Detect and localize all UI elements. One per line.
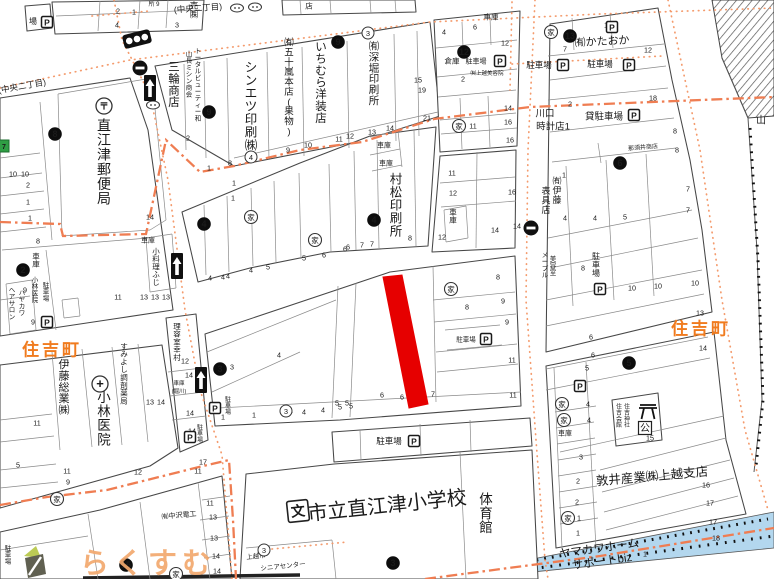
house-icon-glyph: 家: [311, 235, 319, 245]
lot-number: 14: [699, 344, 707, 353]
bus-stop-dot: [252, 6, 254, 8]
place-label: 小料理ふじ: [152, 247, 160, 287]
lot-number: 4: [593, 214, 597, 223]
parking-icon: P: [629, 110, 640, 121]
place-label: 駐車場: [225, 395, 231, 415]
house-icon-glyph: 家: [547, 27, 555, 37]
white-circle-marker: 3: [258, 544, 270, 556]
place-label: 川口: [535, 108, 554, 119]
place-label: 小林医院: [32, 275, 39, 304]
black-circle-marker: 12: [457, 45, 471, 59]
house-icon-glyph: 家: [53, 494, 61, 504]
marker-number: 6: [617, 158, 622, 168]
place-label: 車庫: [32, 251, 40, 269]
place-label: 車庫: [449, 207, 457, 225]
place-label: 山: [756, 115, 766, 127]
place-label: 車庫: [379, 159, 393, 168]
place-label: 山長ミシン商会: [186, 49, 193, 99]
one-way-arrow-icon: [144, 75, 156, 101]
lot-number: 4: [587, 416, 591, 425]
lot-number: 17: [709, 518, 717, 527]
marker-number: 9: [206, 107, 211, 117]
parking-icon: P: [210, 403, 221, 414]
black-circle-marker: 3: [386, 556, 400, 570]
lot-number: 8: [408, 234, 412, 243]
lot-number: 14: [513, 222, 521, 231]
lot-number: 8: [496, 273, 500, 282]
no-entry-bar: [136, 67, 145, 70]
lot-number: 11: [33, 419, 40, 428]
house-icon: 家: [545, 26, 558, 39]
marker-number: 4: [201, 219, 206, 229]
place-label: すみよし調剤薬局: [120, 342, 128, 406]
lot-number: 12: [438, 233, 446, 242]
house-icon-glyph: 家: [558, 399, 566, 409]
place-label: ㈲上越美容院: [470, 69, 504, 77]
place-label: 所 9: [148, 0, 160, 8]
place-label: 美容室: [550, 254, 557, 277]
lot-number: 8: [465, 303, 469, 312]
one-way-arrow-icon: [171, 253, 183, 279]
place-label: 駐車場: [587, 59, 613, 69]
lot-number: 11: [508, 356, 515, 365]
lot-number: 2: [186, 134, 190, 143]
black-circle-marker: 9: [202, 105, 216, 119]
lot-number: 13: [368, 128, 376, 137]
bus-stop-oval: [147, 101, 160, 109]
lot-number: 6: [473, 23, 477, 32]
parking-icon-letter: P: [631, 110, 637, 120]
place-label: 伊藤総業㈱: [59, 358, 70, 417]
lot-number: 1: [643, 550, 647, 559]
lot-number: 8: [673, 127, 677, 136]
marker-number: 3: [262, 546, 266, 555]
parking-icon-letter: P: [577, 381, 583, 391]
lot-number: 3: [175, 21, 179, 30]
parking-icon: P: [595, 284, 606, 295]
place-label: 場: [29, 16, 37, 26]
house-icon: 家: [245, 211, 258, 224]
lot-number: 8: [228, 159, 232, 168]
lot-number: 8: [36, 237, 40, 246]
lot-number: 10: [691, 279, 699, 288]
lot-number: 11: [509, 391, 516, 400]
lot-number: 9: [505, 318, 509, 327]
place-label: 表具店: [541, 185, 550, 215]
lot-number: 8: [581, 264, 585, 273]
marker-number: 4: [249, 153, 253, 162]
lot-number: 16: [504, 118, 512, 127]
lot-number: 21: [423, 114, 431, 123]
school-icon-glyph: 文: [290, 502, 307, 519]
place-label: 駐車場: [592, 251, 600, 278]
place-label: 駐車場: [43, 280, 50, 303]
lot-number: 1: [221, 413, 225, 422]
parking-icon: P: [185, 432, 196, 443]
lot-number: 13: [146, 398, 154, 407]
lot-number: 11: [206, 499, 213, 508]
marker-number: 8: [52, 129, 57, 139]
lot-number: 11: [469, 122, 476, 131]
house-icon-glyph: 家: [560, 415, 568, 425]
lot-number: 18: [712, 534, 720, 543]
lot-number: 4: [277, 351, 281, 360]
lot-number: 15: [414, 76, 422, 85]
lot-number: 2: [461, 75, 465, 84]
house-icon-glyph: 家: [564, 513, 572, 523]
white-circle-marker: 3: [362, 27, 374, 39]
lot-number: 16: [508, 188, 516, 197]
parking-icon-letter: P: [609, 22, 615, 32]
marker-number: 2: [20, 265, 25, 275]
place-label: 住吉会館: [616, 402, 622, 429]
lot-number: 4: [249, 266, 253, 275]
black-circle-marker: 6: [613, 156, 627, 170]
lot-number: 13: [140, 293, 148, 302]
lot-number: 18: [649, 94, 657, 103]
place-label: 小林医院: [97, 390, 111, 447]
lot-number: 4: [208, 274, 212, 283]
place-label: 駐車場: [197, 423, 203, 443]
public-hall-glyph: 公: [640, 424, 650, 435]
parking-icon-letter: P: [560, 60, 566, 70]
lot-number: 1: [577, 514, 581, 523]
black-circle-marker: 9: [331, 35, 345, 49]
parking-icon: P: [607, 22, 618, 33]
house-icon: 家: [51, 493, 64, 506]
parking-icon: P: [575, 381, 586, 392]
marker-number: 13: [565, 31, 575, 41]
bus-stop-dot: [256, 6, 258, 8]
parking-icon: P: [558, 60, 569, 71]
lot-number: 14: [386, 124, 394, 133]
lot-number: 4: [221, 273, 225, 282]
lot-number: 4: [302, 408, 306, 417]
place-label: 三輪商店: [168, 61, 180, 109]
lot-number: 2: [576, 477, 580, 486]
lot-number: 7: [370, 240, 374, 249]
school-icon: 文: [286, 499, 309, 522]
parking-icon-letter: P: [44, 317, 50, 327]
parking-icon: P: [42, 317, 53, 328]
lot-number: 1: [132, 8, 136, 17]
place-label: 店: [305, 1, 313, 11]
lot-number: 6: [589, 333, 593, 342]
lot-number: 14: [186, 409, 194, 418]
lot-number: 9: [286, 146, 290, 155]
parking-icon-letter: P: [597, 284, 603, 294]
lot-number: 9: [31, 318, 35, 327]
marker-number: 3: [366, 29, 370, 38]
bus-stop-dot: [150, 104, 152, 106]
lot-number: 2: [116, 7, 120, 16]
lot-number: 13: [209, 513, 217, 522]
lot-number: 14: [504, 104, 512, 113]
no-entry-icon: [133, 61, 148, 76]
place-label: 村松印刷所: [390, 172, 403, 238]
lot-number: 19: [418, 86, 426, 95]
place-label: 貸駐車場: [585, 110, 624, 122]
black-circle-marker: 2: [16, 263, 30, 277]
parking-icon-letter: P: [497, 56, 503, 66]
black-circle-marker: 8: [48, 127, 62, 141]
lot-number: 16: [506, 136, 514, 145]
place-label: シンエツ印刷㈱: [245, 60, 258, 152]
place-label: (堀川): [172, 387, 187, 395]
bus-stop-dot: [238, 7, 240, 9]
hospital-cross-glyph: +: [96, 376, 104, 391]
place-label: 車庫: [377, 141, 391, 150]
place-label: ㈲五十嵐本店(果物): [284, 37, 294, 138]
house-icon-glyph: 家: [455, 121, 463, 131]
place-label: 車庫: [484, 12, 499, 22]
place-label: 倉庫: [445, 56, 460, 66]
no-entry-bar: [527, 227, 536, 230]
place-label: 直江津郵便局: [97, 118, 111, 207]
place-label: 車庫: [173, 379, 185, 387]
marker-number: 3: [217, 364, 222, 374]
lot-number: 1: [576, 529, 580, 538]
house-icon: 家: [558, 414, 571, 427]
lot-number: 7: [686, 185, 690, 194]
bus-stop-oval: [249, 3, 262, 11]
post-office-glyph: 〒: [99, 101, 109, 112]
lot-number: 14: [157, 398, 165, 407]
house-icon: 家: [445, 283, 458, 296]
place-label: いちむら洋装店: [315, 41, 327, 125]
place-label: ㈲伊藤: [552, 175, 561, 205]
marker-number: 3: [284, 407, 288, 416]
place-label: 車庫: [558, 429, 572, 438]
place-label: 駐車場: [456, 334, 476, 343]
lot-number: 6: [343, 245, 347, 254]
lot-number: 10: [654, 282, 662, 291]
lot-number: 5: [266, 263, 270, 272]
lot-number: 1: [252, 411, 256, 420]
public-hall-icon: 公: [639, 422, 652, 435]
lot-number: 13: [151, 293, 159, 302]
parking-icon: P: [42, 17, 53, 28]
one-way-arrow-icon: [195, 367, 207, 393]
lot-number: 4: [563, 214, 567, 223]
parking-icon-letter: P: [411, 436, 417, 446]
lot-number: 5: [338, 403, 342, 412]
lot-number: 12: [181, 357, 189, 366]
house-icon: 家: [562, 512, 575, 525]
lot-number: 6: [322, 251, 326, 260]
lot-number: 12: [501, 39, 509, 48]
lot-number: 8: [675, 146, 679, 155]
house-icon: 家: [309, 234, 322, 247]
lot-number: 14: [185, 371, 193, 380]
bus-stop-oval: [231, 4, 244, 12]
lot-number: 11: [63, 467, 70, 476]
black-circle-marker: 4: [197, 217, 211, 231]
lot-number: 6: [591, 351, 595, 360]
lot-number: 12: [346, 132, 354, 141]
house-icon: 家: [556, 398, 569, 411]
lot-number: 1: [562, 171, 566, 180]
lot-number: 2: [575, 498, 579, 507]
parking-icon-letter: P: [187, 432, 193, 442]
place-label: 体育館: [479, 492, 493, 535]
parking-icon: P: [495, 56, 506, 67]
parking-icon: P: [624, 60, 635, 71]
bus-stop-icon: [231, 4, 244, 12]
place-label: ㈲深堀印刷所: [369, 40, 380, 107]
lot-number: 4: [586, 400, 590, 409]
place-label: 駐車場: [376, 436, 402, 446]
lot-number: 9: [66, 478, 70, 487]
lot-number: 11: [335, 135, 342, 144]
lot-number: 4: [226, 272, 230, 281]
green-lot-number: 7: [2, 144, 6, 151]
lot-number: 5: [585, 364, 589, 373]
lot-number: 1: [232, 179, 236, 188]
lot-number: 3: [579, 453, 583, 462]
district-label-sumiyoshicho-west: 住吉町: [22, 336, 82, 361]
lot-number: 14: [491, 226, 499, 235]
marker-number: 3: [390, 558, 395, 568]
lot-number: 1: [231, 194, 235, 203]
no-entry-icon: [524, 221, 539, 236]
white-circle-marker: 4: [245, 151, 257, 163]
lot-number: 7: [431, 390, 435, 399]
lot-number: 6: [380, 391, 384, 400]
lot-number: 10: [304, 141, 312, 150]
district-label-sumiyoshicho-east: 住吉町: [671, 315, 731, 340]
parking-icon: P: [409, 436, 420, 447]
lot-number: 9: [501, 297, 505, 306]
marker-number: 12: [459, 47, 469, 57]
bus-stop-dot: [234, 7, 236, 9]
black-circle-marker: 4: [367, 213, 381, 227]
marker-number: 9: [335, 37, 340, 47]
place-label: 駐車場: [466, 57, 487, 66]
lot-number: 5: [349, 402, 353, 411]
place-label: ヘアサロン: [9, 287, 16, 321]
house-icon: 家: [453, 120, 466, 133]
parking-icon-letter: P: [212, 403, 218, 413]
lot-number: 14: [146, 213, 154, 222]
lot-number: 7: [360, 241, 364, 250]
place-label: 駐車場: [526, 60, 552, 70]
lot-number: 7: [686, 206, 690, 215]
parking-icon: P: [481, 334, 492, 345]
parking-icon-letter: P: [483, 334, 489, 344]
lot-number: 12: [449, 189, 457, 198]
lot-number: 7: [563, 45, 567, 54]
lot-number: 5: [623, 213, 627, 222]
lot-number: 10: [9, 170, 17, 179]
lot-number: 16: [702, 481, 710, 490]
place-label: 駐車場: [5, 543, 12, 566]
lot-number: 5: [16, 461, 20, 470]
parking-icon-letter: P: [626, 60, 632, 70]
lot-number: 11: [114, 293, 121, 302]
place-label: メープル: [542, 252, 549, 279]
lot-number: 10: [628, 284, 636, 293]
map-stage: 7直江津郵便局三輪商店山長ミシン商会トータルビューティー和シンエツ印刷㈱㈲五十嵐…: [0, 0, 774, 579]
bus-stop-icon: [249, 3, 262, 11]
lot-number: 10: [21, 170, 29, 179]
place-label: 車庫: [141, 236, 155, 245]
black-circle-marker: 5: [622, 356, 636, 370]
lot-number: 3: [230, 363, 234, 372]
lot-number: 13: [162, 293, 170, 302]
house-icon-glyph: 家: [247, 212, 255, 222]
parking-icon-letter: P: [44, 17, 50, 27]
lot-number: 12: [644, 46, 652, 55]
black-circle-marker: 3: [213, 362, 227, 376]
lot-number: 1: [26, 198, 30, 207]
zenrin-residential-map: 7直江津郵便局三輪商店山長ミシン商会トータルビューティー和シンエツ印刷㈱㈲五十嵐…: [0, 0, 774, 579]
hospital-icon: +: [92, 376, 108, 392]
lot-number: 2: [568, 100, 572, 109]
lot-number: 1: [28, 214, 32, 223]
lot-number: 17: [199, 458, 207, 467]
house-icon-glyph: 家: [447, 284, 455, 294]
post-office-icon: 〒: [96, 98, 112, 114]
bus-stop-dot: [154, 104, 156, 106]
marker-number: 4: [371, 215, 376, 225]
watermark-rakusumu: らくすむ: [80, 540, 216, 579]
marker-number: 5: [626, 358, 631, 368]
lot-number: 17: [706, 499, 714, 508]
place-label: トータルビューティー和: [195, 48, 202, 123]
lot-number: 12: [134, 468, 142, 477]
lot-number: 11: [448, 169, 455, 178]
lot-number: 6: [400, 393, 404, 402]
lot-number: 4: [442, 28, 446, 37]
lot-number: 9: [23, 286, 27, 295]
lot-number: 4: [321, 406, 325, 415]
lot-number: 5: [302, 254, 306, 263]
place-label: 時計店1: [536, 120, 570, 132]
white-circle-marker: 3: [280, 405, 292, 417]
black-circle-marker: 13: [563, 29, 577, 43]
place-label: 住吉神社: [624, 402, 630, 429]
lot-number: 1: [207, 164, 211, 173]
lot-number: 4: [115, 21, 119, 30]
lot-number: 11: [194, 467, 201, 476]
lot-number: 2: [26, 181, 30, 190]
bus-stop-icon: [147, 101, 160, 109]
